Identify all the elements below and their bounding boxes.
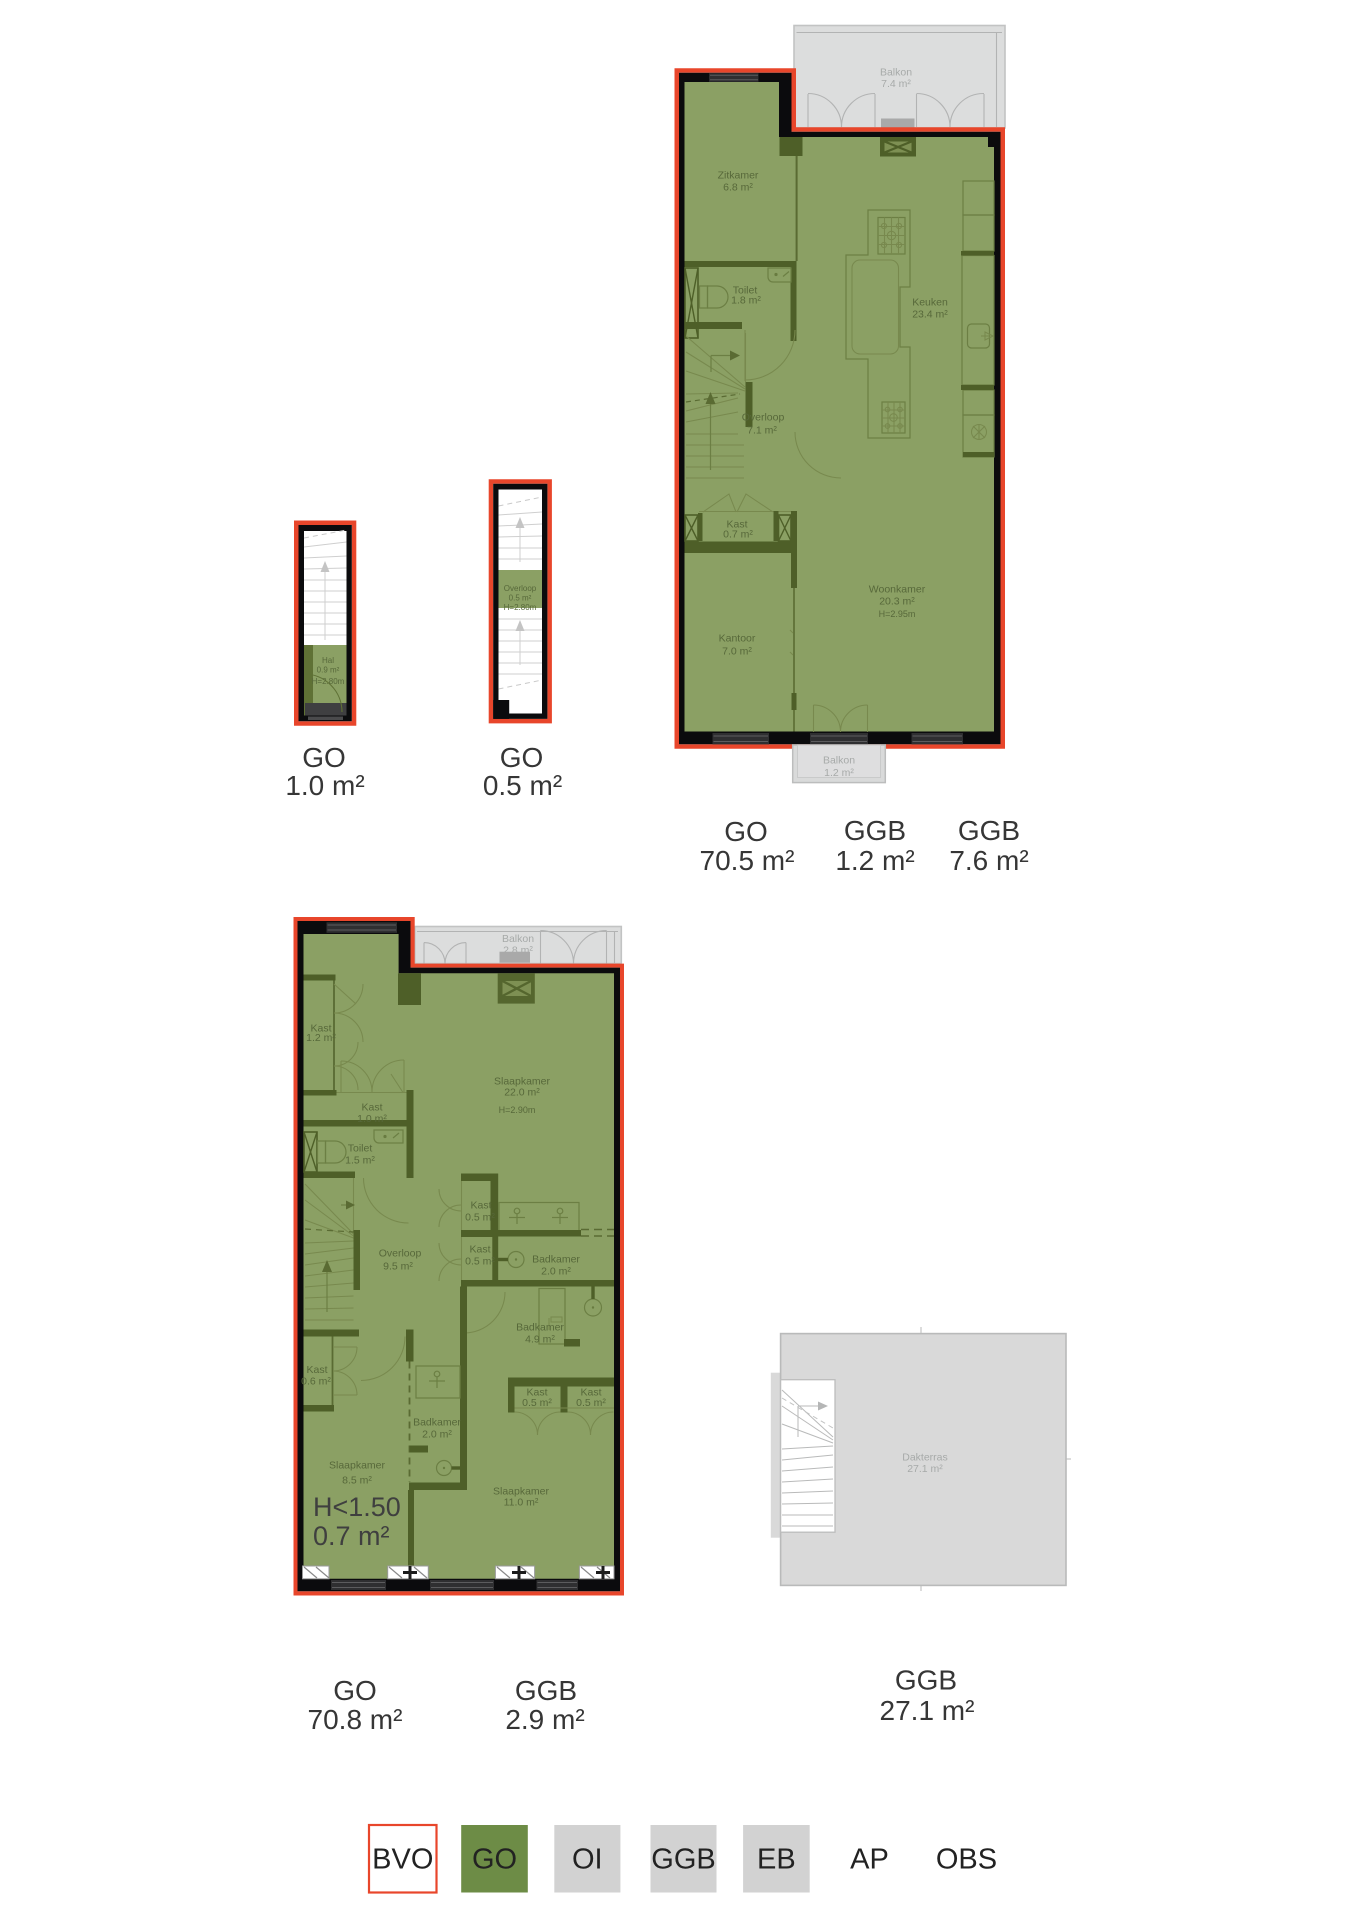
svg-text:BVO: BVO [372, 1844, 433, 1876]
svg-text:0.7 m²: 0.7 m² [723, 529, 753, 541]
svg-text:GO: GO [333, 1675, 377, 1706]
svg-text:EB: EB [757, 1844, 796, 1876]
svg-text:0.9 m²: 0.9 m² [317, 665, 340, 674]
svg-text:H=2.90m: H=2.90m [499, 1105, 536, 1115]
svg-text:OBS: OBS [936, 1844, 997, 1876]
svg-text:GO: GO [472, 1844, 517, 1876]
svg-text:Kantoor: Kantoor [719, 633, 756, 645]
svg-text:0.6 m²: 0.6 m² [301, 1376, 331, 1388]
svg-text:0.5 m²: 0.5 m² [465, 1256, 495, 1268]
svg-text:0.7 m²: 0.7 m² [313, 1521, 390, 1551]
svg-text:H=2.80m: H=2.80m [312, 677, 345, 686]
svg-text:0.5 m²: 0.5 m² [522, 1397, 552, 1409]
svg-text:Slaapkamer: Slaapkamer [329, 1460, 386, 1472]
svg-text:2.9 m²: 2.9 m² [505, 1704, 584, 1735]
svg-text:Overloop: Overloop [379, 1248, 422, 1260]
svg-text:Balkon: Balkon [502, 933, 534, 945]
svg-text:GGB: GGB [844, 815, 906, 846]
svg-text:7.4 m²: 7.4 m² [881, 78, 911, 90]
svg-text:1.0 m²: 1.0 m² [357, 1113, 387, 1125]
svg-text:4.9 m²: 4.9 m² [525, 1334, 555, 1346]
svg-text:GGB: GGB [515, 1675, 577, 1706]
svg-text:1.2 m²: 1.2 m² [824, 767, 854, 779]
svg-text:7.6 m²: 7.6 m² [949, 845, 1028, 876]
svg-text:22.0 m²: 22.0 m² [504, 1087, 540, 1099]
svg-text:Balkon: Balkon [880, 67, 912, 79]
svg-text:27.1 m²: 27.1 m² [880, 1695, 975, 1726]
svg-text:Badkamer: Badkamer [532, 1254, 580, 1266]
svg-text:11.0 m²: 11.0 m² [504, 1497, 539, 1509]
svg-text:GGB: GGB [651, 1844, 715, 1876]
svg-text:GGB: GGB [895, 1665, 957, 1696]
svg-text:1.2 m²: 1.2 m² [306, 1032, 336, 1044]
svg-text:Balkon: Balkon [823, 755, 855, 767]
svg-text:Kast: Kast [470, 1200, 491, 1212]
svg-text:Keuken: Keuken [912, 297, 948, 309]
svg-text:6.8 m²: 6.8 m² [723, 182, 753, 194]
svg-text:2.0 m²: 2.0 m² [422, 1429, 452, 1441]
svg-text:2.0 m²: 2.0 m² [541, 1266, 571, 1278]
svg-text:Overloop: Overloop [504, 584, 537, 593]
svg-text:0.5 m²: 0.5 m² [576, 1397, 606, 1409]
svg-text:Badkamer: Badkamer [413, 1417, 461, 1429]
svg-text:0.5 m²: 0.5 m² [465, 1212, 495, 1224]
svg-text:Toilet: Toilet [348, 1143, 373, 1155]
svg-text:23.4 m²: 23.4 m² [912, 309, 948, 321]
svg-text:8.5 m²: 8.5 m² [342, 1475, 372, 1487]
svg-text:Woonkamer: Woonkamer [869, 584, 926, 596]
svg-text:Badkamer: Badkamer [516, 1322, 564, 1334]
svg-text:Hal: Hal [322, 656, 334, 665]
svg-text:9.5 m²: 9.5 m² [383, 1261, 413, 1273]
svg-text:GGB: GGB [958, 815, 1020, 846]
svg-text:Zitkamer: Zitkamer [718, 170, 759, 182]
svg-text:0.5 m²: 0.5 m² [483, 770, 562, 801]
svg-text:1.0 m²: 1.0 m² [285, 770, 364, 801]
svg-text:GO: GO [724, 816, 768, 847]
svg-text:Kast: Kast [306, 1364, 327, 1376]
svg-text:1.2 m²: 1.2 m² [835, 845, 914, 876]
svg-text:AP: AP [850, 1844, 889, 1876]
svg-text:70.8 m²: 70.8 m² [308, 1704, 403, 1735]
svg-text:Dakterras: Dakterras [902, 1452, 948, 1464]
svg-text:GO: GO [500, 742, 544, 773]
svg-text:1.5 m²: 1.5 m² [345, 1155, 375, 1167]
svg-text:GO: GO [302, 742, 346, 773]
svg-text:Kast: Kast [361, 1102, 382, 1114]
svg-text:27.1 m²: 27.1 m² [907, 1463, 943, 1475]
svg-text:H=2.95m: H=2.95m [879, 609, 916, 619]
svg-text:0.5 m²: 0.5 m² [509, 593, 532, 602]
svg-text:7.1 m²: 7.1 m² [747, 425, 777, 437]
svg-text:H=2.80m: H=2.80m [504, 603, 537, 612]
svg-text:H<1.50: H<1.50 [313, 1492, 401, 1522]
svg-text:70.5 m²: 70.5 m² [700, 845, 795, 876]
svg-text:Overloop: Overloop [742, 412, 785, 424]
svg-text:7.0 m²: 7.0 m² [722, 646, 752, 658]
svg-text:Kast: Kast [469, 1244, 490, 1256]
svg-text:1.8 m²: 1.8 m² [731, 295, 761, 307]
svg-text:20.3 m²: 20.3 m² [879, 596, 915, 608]
svg-text:OI: OI [572, 1844, 603, 1876]
